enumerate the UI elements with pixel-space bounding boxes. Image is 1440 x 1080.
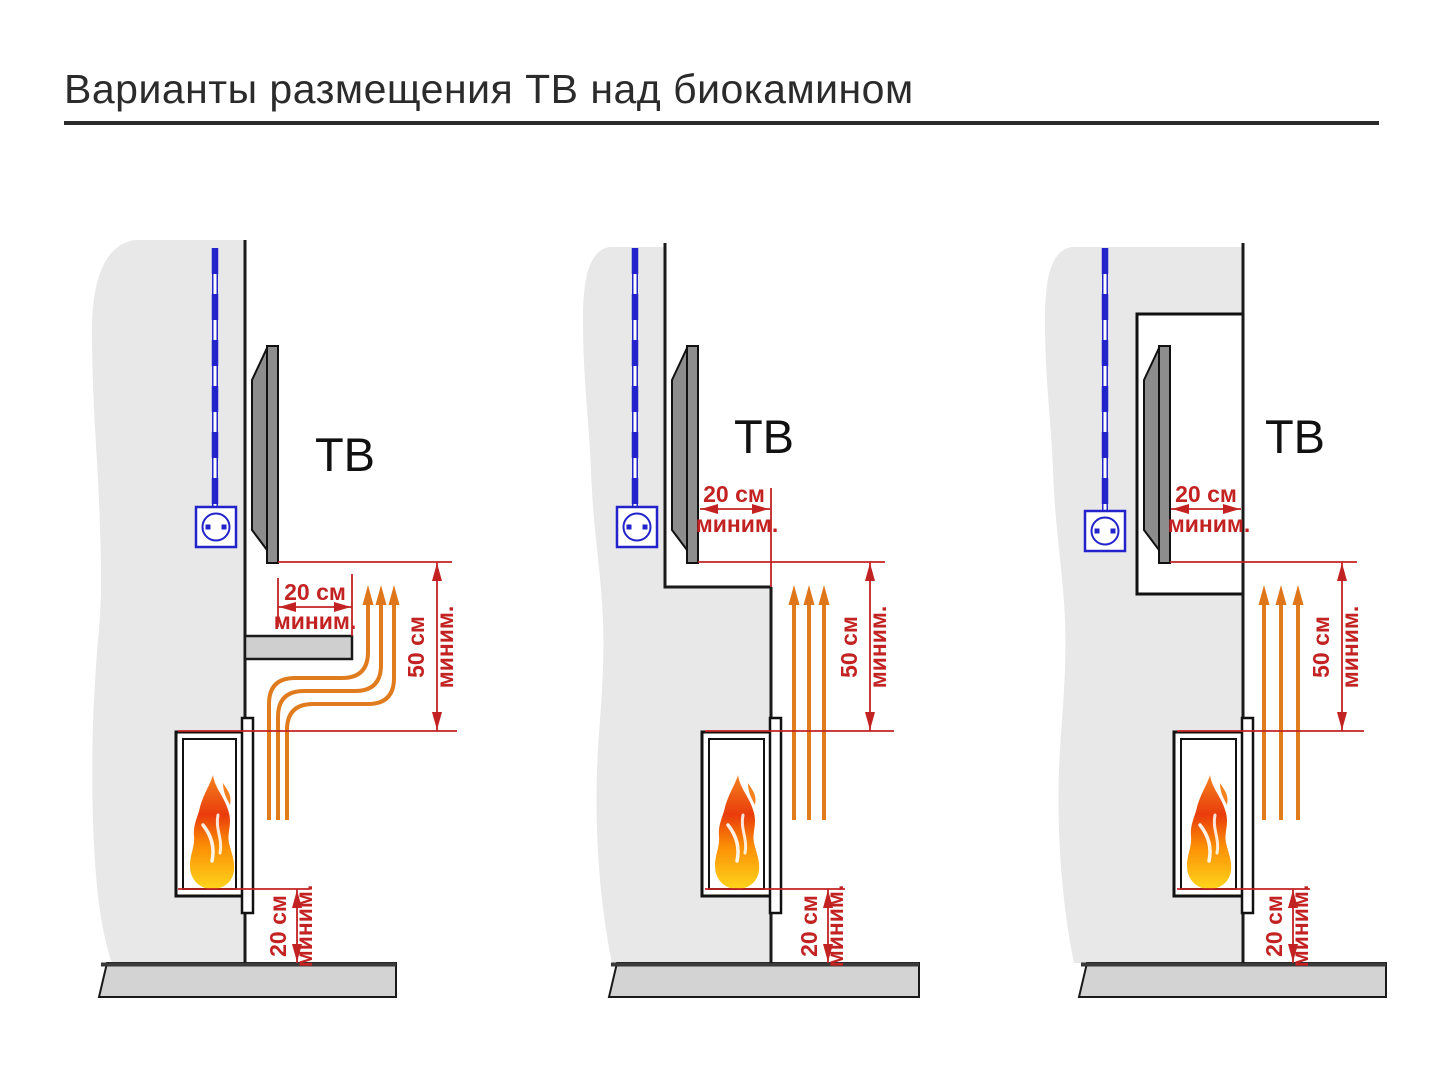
power-socket-icon (617, 507, 657, 547)
dim-floor-value: 20 см (796, 895, 822, 957)
diagram-canvas: ТВ (0, 0, 1440, 1080)
fireplace (702, 718, 781, 913)
diagram-variant-1: ТВ (92, 240, 458, 997)
fireplace-glass-front (242, 718, 253, 913)
tv-side-view (252, 346, 278, 563)
dim-gap-value: 20 см (703, 481, 765, 507)
tv-label: ТВ (734, 410, 794, 463)
dim-gap-value: 20 см (284, 579, 346, 605)
heat-arrowheads (789, 585, 830, 605)
diagram-variant-3: ТВ (1045, 243, 1386, 997)
floor-slab (1079, 963, 1386, 997)
power-socket-icon (196, 507, 236, 547)
fireplace (1174, 718, 1253, 913)
tv-label: ТВ (315, 428, 375, 481)
dim-floor-qualifier: миним. (822, 885, 848, 968)
heat-flow-arrows (794, 604, 824, 820)
title-underline (64, 121, 1379, 125)
diagram-variant-2: ТВ (583, 243, 919, 997)
dim-height-qualifier: миним. (432, 606, 458, 689)
tv-label: ТВ (1265, 410, 1325, 463)
heat-arrowheads (363, 585, 400, 605)
page: Варианты размещения ТВ над биокамином (0, 0, 1440, 1080)
dim-height-value: 50 см (836, 616, 862, 678)
dim-height-qualifier: миним. (1337, 606, 1363, 689)
tv-side-view (672, 346, 698, 563)
heat-flow-arrows (1264, 604, 1298, 820)
fireplace (176, 718, 253, 913)
floor-slab (609, 963, 919, 997)
dim-floor-value: 20 см (1261, 895, 1287, 957)
dim-height-value: 50 см (403, 616, 429, 678)
tv-side-view (1144, 346, 1170, 563)
dim-floor-qualifier: миним. (291, 885, 317, 968)
dim-gap-qualifier: миним. (274, 608, 357, 634)
dim-height-value: 50 см (1308, 616, 1334, 678)
dim-floor-qualifier: миним. (1287, 885, 1313, 968)
heat-arrowheads (1259, 585, 1304, 605)
page-title: Варианты размещения ТВ над биокамином (64, 66, 914, 113)
dim-gap-qualifier: миним. (1168, 511, 1251, 537)
dim-gap-qualifier: миним. (696, 511, 779, 537)
power-socket-icon (1085, 511, 1125, 551)
fireplace-glass-front (770, 718, 781, 913)
dim-floor-value: 20 см (265, 895, 291, 957)
floor-slab (99, 963, 396, 997)
mantel-shelf (245, 636, 352, 659)
dim-height-qualifier: миним. (865, 606, 891, 689)
dim-gap-value: 20 см (1175, 481, 1237, 507)
fireplace-glass-front (1242, 718, 1253, 913)
